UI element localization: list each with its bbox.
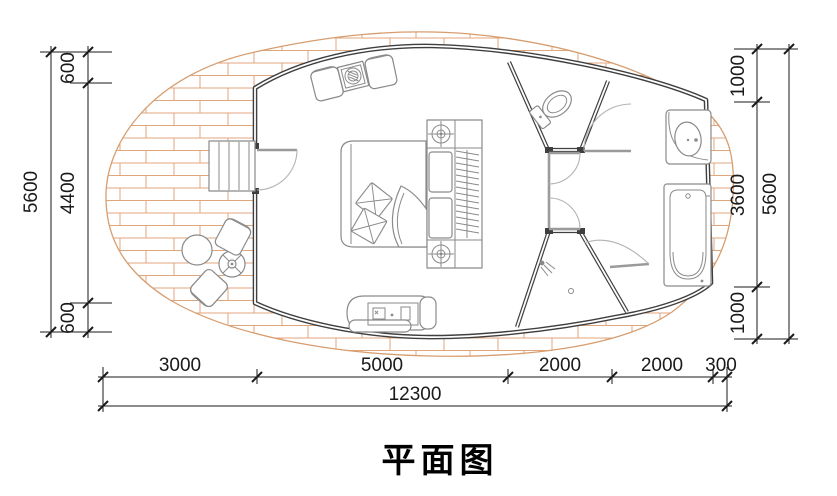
console-counter	[347, 296, 436, 332]
bed	[341, 120, 482, 268]
bathtub	[664, 184, 711, 286]
dim-right-seg-1000-bottom: 1000	[728, 292, 749, 334]
dim-left-seg-600-top: 600	[58, 52, 79, 84]
bedroom-chair-2	[364, 53, 398, 89]
dim-bottom-seg-5000: 5000	[361, 355, 403, 376]
dim-bottom-seg-300: 300	[705, 355, 737, 376]
floor-plan-drawing: 600 4400 600 5600 1000 3600 1000 5600 30…	[0, 0, 837, 496]
dimension-right: 1000 3600 1000 5600	[728, 44, 798, 344]
dim-bottom-seg-3000: 3000	[159, 355, 201, 376]
headboard-unit	[427, 120, 482, 268]
dim-right-total-5600: 5600	[760, 173, 781, 215]
dim-right-seg-3600: 3600	[728, 174, 749, 216]
dimension-bottom: 3000 5000 2000 2000 300 12300	[98, 355, 737, 412]
dimension-left: 600 4400 600 5600	[21, 46, 112, 338]
outdoor-side-table	[219, 251, 245, 277]
dim-left-seg-600-bottom: 600	[58, 302, 79, 334]
drawing-title: 平面图	[382, 442, 499, 480]
sink	[666, 110, 711, 164]
dim-bottom-seg-2000-b: 2000	[641, 355, 683, 376]
dim-left-seg-4400: 4400	[58, 172, 79, 214]
dim-bottom-total-12300: 12300	[389, 384, 442, 405]
floor-plan-page: 600 4400 600 5600 1000 3600 1000 5600 30…	[0, 0, 837, 496]
bedroom-side-table	[337, 61, 368, 92]
stairs	[209, 141, 255, 191]
outdoor-table	[182, 235, 212, 265]
dim-left-total-5600: 5600	[21, 171, 42, 213]
dim-bottom-seg-2000-a: 2000	[539, 355, 581, 376]
dim-right-seg-1000-top: 1000	[728, 55, 749, 97]
